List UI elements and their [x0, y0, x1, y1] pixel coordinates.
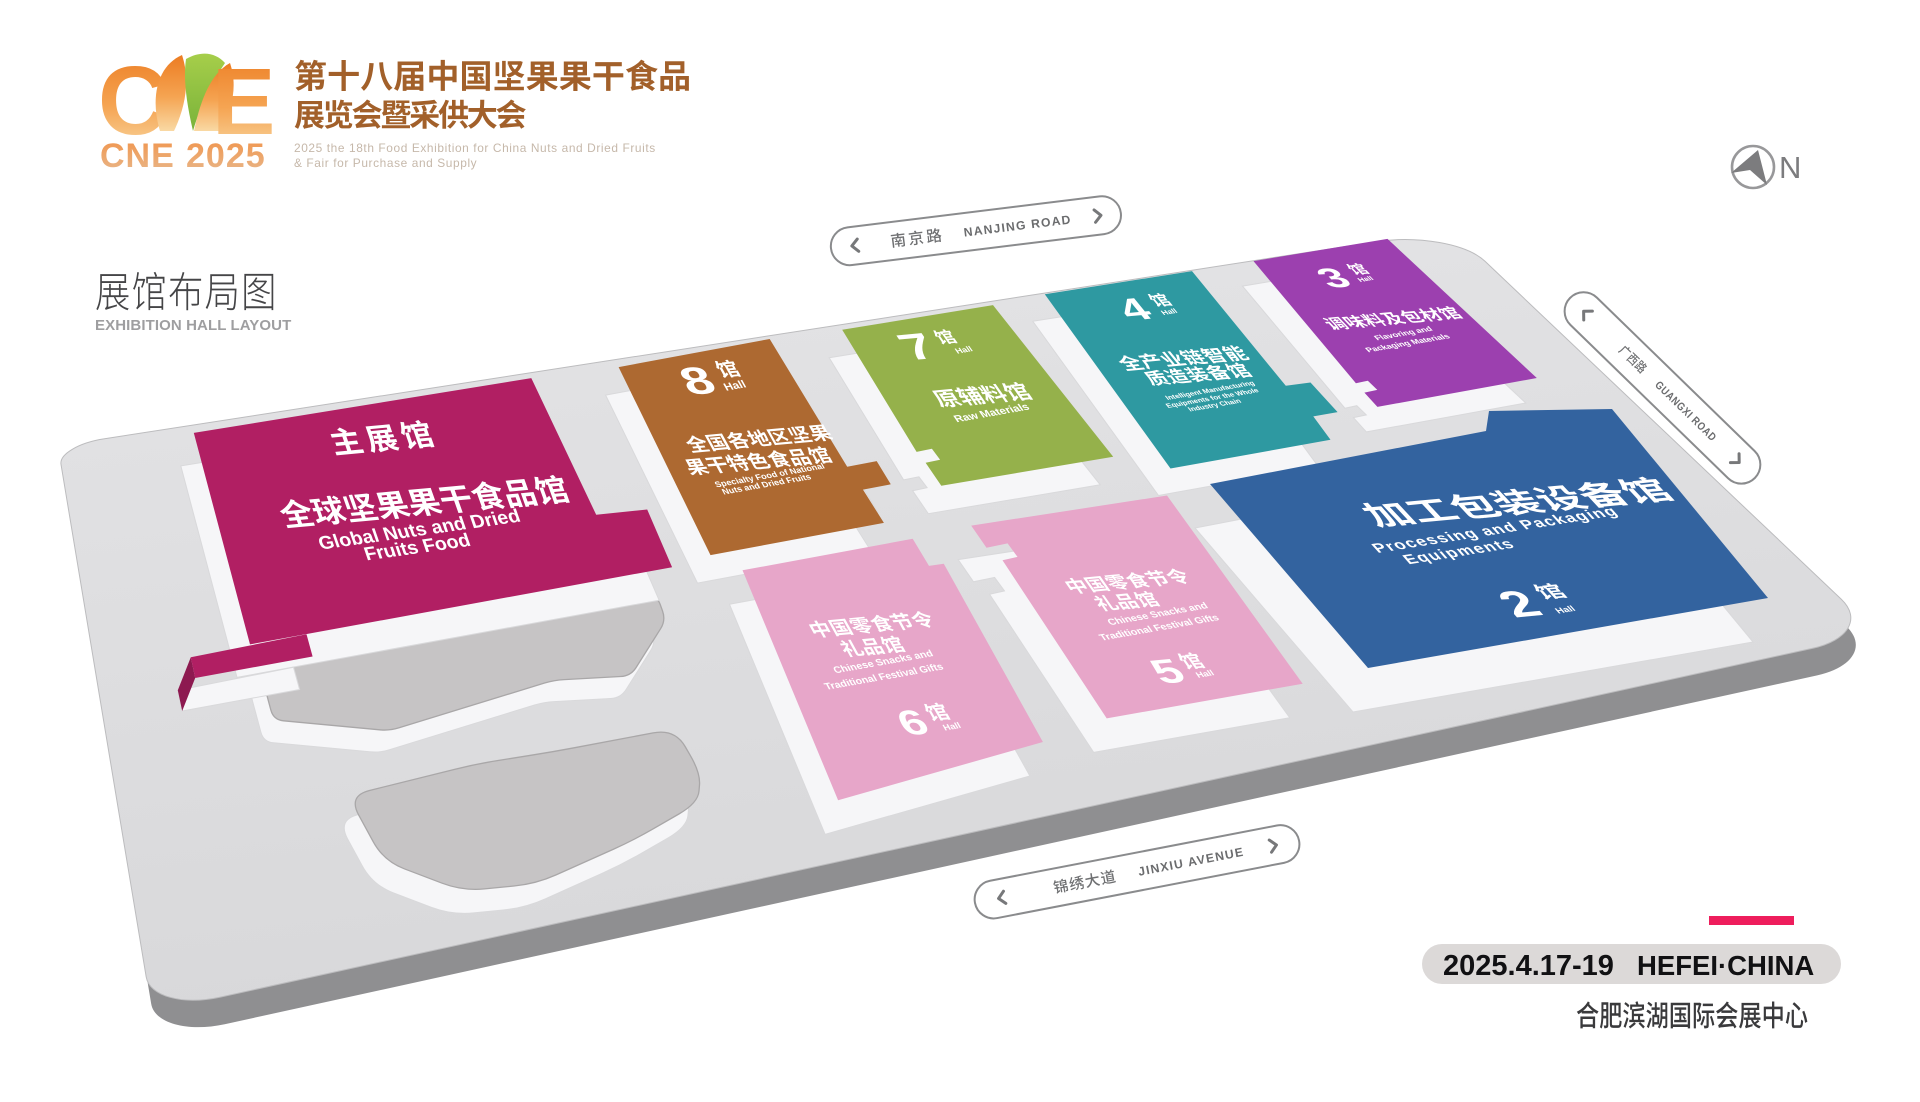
svg-text:CNE: CNE — [100, 137, 175, 175]
svg-text:EXHIBITION HALL LAYOUT: EXHIBITION HALL LAYOUT — [95, 317, 291, 334]
svg-text:2025 the 18th Food Exhibition: 2025 the 18th Food Exhibition for China … — [294, 141, 656, 155]
svg-text:N: N — [1779, 150, 1801, 185]
svg-text:& Fair for Purchase and Supply: & Fair for Purchase and Supply — [294, 156, 477, 170]
svg-text:HEFEI·CHINA: HEFEI·CHINA — [1637, 950, 1814, 981]
svg-text:2025: 2025 — [186, 137, 266, 175]
svg-text:2025.4.17-19: 2025.4.17-19 — [1443, 950, 1614, 982]
